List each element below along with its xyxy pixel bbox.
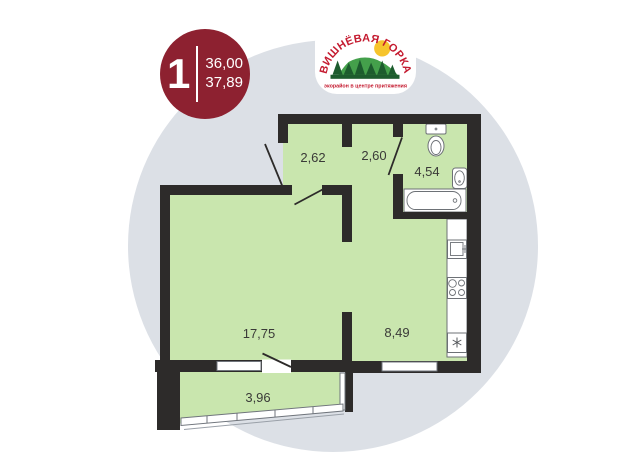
stove <box>448 278 467 299</box>
opening-balcony-door <box>262 360 291 374</box>
area-label-hall-1: 2,62 <box>300 150 325 165</box>
wall-hall-living-left <box>160 185 292 195</box>
wall-entrance-stub <box>278 114 288 143</box>
logo-tagline: экорайон в центре притяжения <box>324 82 407 89</box>
wall-bath-bottom <box>393 212 467 219</box>
wall-left <box>160 185 170 372</box>
entrance-door-leaf <box>265 144 283 187</box>
wall-hall-partition-stub <box>342 124 352 147</box>
room-count: 1 <box>167 53 190 95</box>
page: 1 36,00 37,89 <box>0 0 644 470</box>
wall-balcony-left <box>157 372 180 430</box>
area-label-hall-2: 2,60 <box>361 148 386 163</box>
area-label-living: 17,75 <box>243 326 276 341</box>
window-kitchen <box>382 362 437 371</box>
wall-living-kitchen-bottom <box>342 312 352 361</box>
fridge <box>448 333 467 353</box>
bathtub <box>404 189 466 212</box>
kitchen-sink <box>448 240 468 259</box>
floor-plan: 2,62 2,60 4,54 17,75 8,49 3,96 <box>150 104 494 444</box>
area-total-value: 37,89 <box>205 74 243 93</box>
developer-logo: ВИШНЁВАЯ ГОРКА экорайон в центре притяже… <box>315 20 416 94</box>
kitchen-counter <box>447 219 468 357</box>
logo-graphic: ВИШНЁВАЯ ГОРКА экорайон в центре притяже… <box>317 22 414 92</box>
badge-areas: 36,00 37,89 <box>205 55 243 93</box>
window-living <box>217 362 261 371</box>
area-living-value: 36,00 <box>205 55 243 74</box>
wall-hall-living-right <box>322 185 352 195</box>
wall-bath-stub <box>393 124 403 137</box>
wall-top <box>278 114 481 124</box>
area-label-bath: 4,54 <box>414 164 439 179</box>
badge-divider <box>196 46 198 102</box>
wall-right <box>467 114 481 373</box>
area-label-kitchen: 8,49 <box>384 325 409 340</box>
wash-basin <box>453 168 468 189</box>
wall-balcony-right <box>345 372 353 412</box>
wall-living-kitchen-top <box>342 195 352 242</box>
area-label-balcony: 3,96 <box>245 390 270 405</box>
